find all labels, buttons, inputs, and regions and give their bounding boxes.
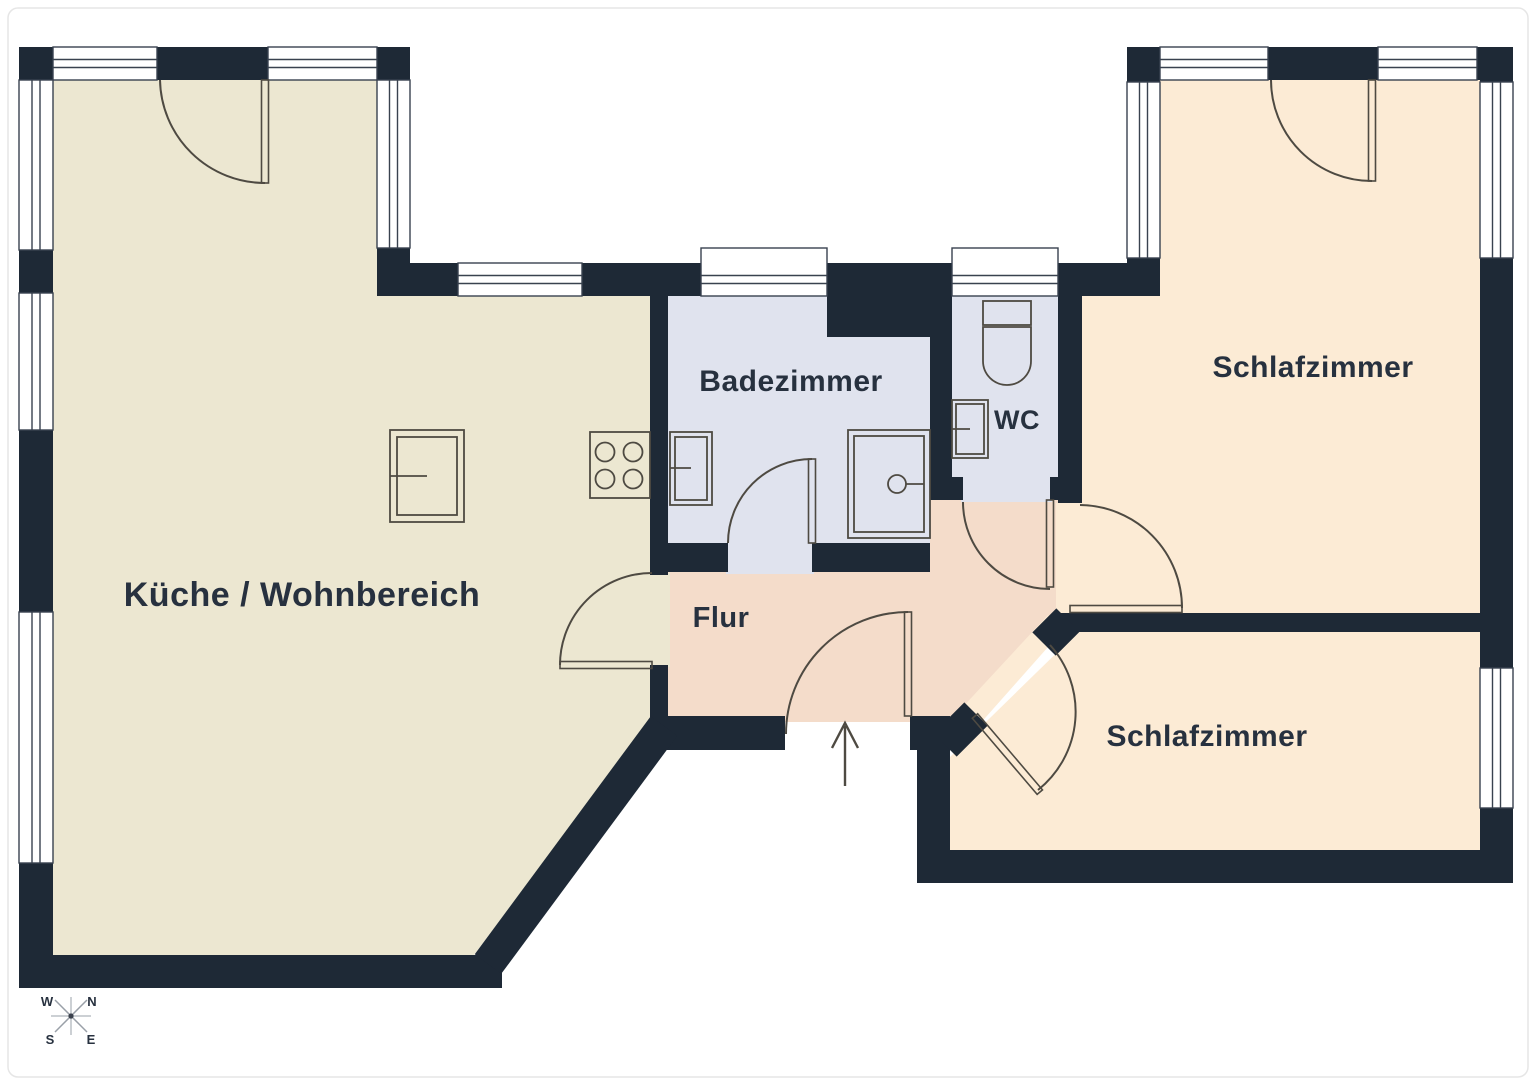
- window-with-sill: [701, 248, 827, 296]
- window: [1480, 668, 1513, 808]
- floor-plan-svg: Küche / Wohnbereich Badezimmer WC Flur S…: [0, 0, 1536, 1085]
- room-label-bathroom: Badezimmer: [699, 365, 882, 398]
- window: [268, 47, 377, 80]
- wall-segment: [930, 477, 963, 500]
- doorway-bedroom-top: [1056, 503, 1084, 615]
- window: [19, 612, 53, 863]
- window: [19, 293, 53, 430]
- window: [1127, 82, 1160, 258]
- room-label-hall: Flur: [693, 602, 750, 634]
- doorway-kitchen-hall: [648, 573, 670, 667]
- wall-segment: [19, 955, 502, 988]
- compass-west: W: [41, 994, 54, 1009]
- room-kitchen-floor: [53, 80, 650, 955]
- window: [53, 47, 157, 80]
- window: [1480, 82, 1513, 258]
- window: [1378, 47, 1477, 80]
- compass-center: [68, 1013, 73, 1018]
- wall-segment: [650, 296, 668, 575]
- wall-segment: [1058, 613, 1483, 632]
- wall-segment: [650, 543, 728, 572]
- compass-east: E: [87, 1032, 96, 1047]
- entrance-arrow-icon: [832, 723, 858, 786]
- wall-segment-diagonal: [945, 714, 976, 745]
- wall-segment: [812, 543, 930, 572]
- doorway-wc-hall: [961, 475, 1052, 502]
- wall-segment-diagonal: [1044, 620, 1068, 644]
- window: [19, 80, 53, 250]
- window: [1160, 47, 1268, 80]
- compass-north: N: [87, 994, 96, 1009]
- wall-segment: [1058, 296, 1082, 503]
- wall-segment: [930, 296, 952, 500]
- room-label-wc: WC: [994, 405, 1040, 435]
- floor-plan-page: Küche / Wohnbereich Badezimmer WC Flur S…: [0, 0, 1536, 1085]
- room-label-kitchen: Küche / Wohnbereich: [124, 576, 480, 614]
- room-label-bedroom-top: Schlafzimmer: [1212, 351, 1413, 384]
- wall-segment: [650, 665, 668, 717]
- compass-rose: W N S E: [41, 994, 97, 1047]
- room-label-bedroom-bottom: Schlafzimmer: [1106, 720, 1307, 753]
- window-with-sill: [952, 248, 1058, 296]
- doorway-bathroom-hall: [726, 541, 814, 574]
- window: [458, 263, 582, 296]
- window: [377, 80, 410, 248]
- wall-segment: [917, 850, 1513, 883]
- compass-south: S: [46, 1032, 55, 1047]
- wall-segment: [917, 750, 950, 883]
- room-wc-floor: [952, 296, 1058, 477]
